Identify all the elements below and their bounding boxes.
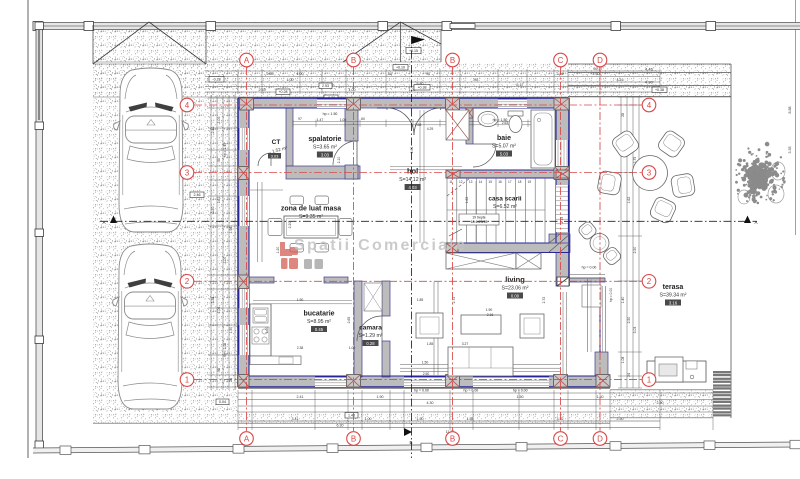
svg-text:S=3.65 m²: S=3.65 m² <box>313 145 337 151</box>
svg-text:0.45: 0.45 <box>315 327 324 332</box>
svg-text:13: 13 <box>469 180 473 184</box>
svg-text:B: B <box>409 440 412 445</box>
svg-text:1.85: 1.85 <box>417 298 424 302</box>
svg-text:12: 12 <box>459 180 463 184</box>
svg-text:1.00: 1.00 <box>365 417 372 421</box>
svg-text:19 trepte: 19 trepte <box>472 216 485 220</box>
svg-text:hp = 0.00: hp = 0.00 <box>414 389 429 393</box>
svg-text:4.16: 4.16 <box>617 78 624 82</box>
svg-text:1: 1 <box>647 376 652 385</box>
svg-text:14: 14 <box>479 180 483 184</box>
svg-text:4: 4 <box>185 101 190 110</box>
svg-text:3.41: 3.41 <box>292 417 299 421</box>
svg-text:1.62: 1.62 <box>465 197 469 204</box>
svg-text:B: B <box>450 434 455 443</box>
svg-text:1.61: 1.61 <box>217 197 221 204</box>
svg-text:1.00: 1.00 <box>217 117 221 124</box>
svg-text:0.28: 0.28 <box>366 341 375 346</box>
svg-text:60: 60 <box>388 72 392 76</box>
svg-text:+0.28: +0.28 <box>278 90 287 94</box>
svg-text:5.17: 5.17 <box>517 83 524 87</box>
svg-text:2.50: 2.50 <box>633 247 637 254</box>
svg-text:2.30: 2.30 <box>211 127 215 134</box>
svg-text:2.72: 2.72 <box>542 297 546 304</box>
svg-text:18: 18 <box>518 180 522 184</box>
svg-text:2.16: 2.16 <box>487 313 494 317</box>
svg-text:3.03: 3.03 <box>271 154 280 159</box>
svg-text:4.03: 4.03 <box>409 185 418 190</box>
svg-text:S=6.52 m²: S=6.52 m² <box>493 204 517 210</box>
svg-text:3.27: 3.27 <box>462 342 469 346</box>
svg-text:hp = 0.00: hp = 0.00 <box>582 266 597 270</box>
svg-text:S=8.95 m²: S=8.95 m² <box>307 319 331 325</box>
svg-text:hp = 1.50: hp = 1.50 <box>323 112 338 116</box>
svg-text:2.50: 2.50 <box>617 417 624 421</box>
svg-text:1.43: 1.43 <box>348 414 355 418</box>
svg-text:S=23.06 m²: S=23.06 m² <box>502 286 529 292</box>
svg-text:4.29: 4.29 <box>427 127 434 131</box>
svg-text:1.90: 1.90 <box>486 308 493 312</box>
svg-text:zona de luat masa: zona de luat masa <box>281 206 341 213</box>
svg-text:2.50: 2.50 <box>627 317 631 324</box>
svg-text:Spatii Comerciale: Spatii Comerciale <box>294 237 467 254</box>
svg-text:2.56: 2.56 <box>557 72 564 76</box>
svg-text:S=9.35 m²: S=9.35 m² <box>299 214 323 220</box>
svg-text:1.50: 1.50 <box>422 360 429 364</box>
svg-text:1: 1 <box>185 376 190 385</box>
svg-text:24: 24 <box>627 373 631 377</box>
svg-text:1.00: 1.00 <box>223 257 227 264</box>
svg-text:3.38: 3.38 <box>211 297 215 304</box>
svg-text:casa scarii: casa scarii <box>488 196 521 203</box>
svg-text:1.00: 1.00 <box>287 78 294 82</box>
svg-text:1.85: 1.85 <box>427 342 434 346</box>
svg-text:1.50: 1.50 <box>229 327 233 334</box>
svg-text:0.00: 0.00 <box>511 293 520 298</box>
svg-text:A: A <box>244 56 250 65</box>
svg-text:2.46: 2.46 <box>194 193 201 197</box>
svg-text:1.90: 1.90 <box>377 395 384 399</box>
svg-text:50: 50 <box>217 158 221 162</box>
svg-text:1.40: 1.40 <box>621 297 625 304</box>
svg-text:camara: camara <box>359 325 382 332</box>
svg-text:18.4x25/28: 18.4x25/28 <box>471 220 488 224</box>
svg-text:2: 2 <box>647 277 652 286</box>
svg-text:+0.10: +0.10 <box>396 66 405 70</box>
svg-text:97: 97 <box>298 117 302 121</box>
svg-text:1.06: 1.06 <box>217 307 221 314</box>
svg-text:2.38: 2.38 <box>297 346 304 350</box>
svg-text:+0.38: +0.38 <box>655 88 664 92</box>
svg-text:C: C <box>558 434 564 443</box>
svg-text:C: C <box>558 56 564 65</box>
svg-text:59.17: 59.17 <box>594 67 603 71</box>
svg-text:+0.15: +0.15 <box>409 49 418 53</box>
svg-text:28: 28 <box>621 113 625 117</box>
svg-text:CT: CT <box>272 139 281 146</box>
svg-text:A: A <box>102 220 105 225</box>
svg-text:A: A <box>754 220 757 225</box>
svg-text:3.16: 3.16 <box>669 300 678 305</box>
svg-text:hp = 0.00: hp = 0.00 <box>464 389 479 393</box>
svg-text:3.03: 3.03 <box>633 327 637 334</box>
svg-text:90: 90 <box>474 78 478 82</box>
svg-text:1.50: 1.50 <box>417 417 424 421</box>
svg-text:terasa: terasa <box>663 284 684 291</box>
svg-text:+0.38: +0.38 <box>417 86 426 90</box>
svg-text:2.50: 2.50 <box>423 372 430 376</box>
svg-text:3.52: 3.52 <box>557 417 564 421</box>
svg-text:B: B <box>351 434 356 443</box>
svg-text:1.08: 1.08 <box>621 357 625 364</box>
svg-text:98: 98 <box>217 368 221 372</box>
svg-text:2.50: 2.50 <box>593 72 600 76</box>
svg-text:2.63: 2.63 <box>502 121 509 125</box>
svg-text:60: 60 <box>361 117 365 121</box>
svg-text:0.04: 0.04 <box>219 400 226 404</box>
svg-text:15: 15 <box>488 180 492 184</box>
svg-text:3: 3 <box>647 168 652 177</box>
svg-text:4.30: 4.30 <box>427 401 434 405</box>
svg-text:2.65: 2.65 <box>347 317 351 324</box>
svg-text:2.63: 2.63 <box>267 72 274 76</box>
svg-text:2.53: 2.53 <box>322 84 329 88</box>
svg-text:spalatorie: spalatorie <box>308 136 341 143</box>
svg-text:living: living <box>505 275 525 284</box>
svg-text:1.00: 1.00 <box>340 118 347 122</box>
svg-text:bucatarie: bucatarie <box>303 311 334 318</box>
svg-text:3.03: 3.03 <box>321 152 330 157</box>
svg-text:2: 2 <box>185 277 190 286</box>
svg-text:baie: baie <box>497 135 511 142</box>
svg-text:1.90: 1.90 <box>297 298 304 302</box>
svg-text:1.00: 1.00 <box>349 88 356 92</box>
svg-text:hp = 0.00: hp = 0.00 <box>513 389 528 393</box>
svg-text:A: A <box>244 434 250 443</box>
svg-text:1.98: 1.98 <box>229 227 233 234</box>
svg-text:19: 19 <box>528 180 532 184</box>
svg-text:B: B <box>450 56 455 65</box>
svg-text:1.62: 1.62 <box>627 197 631 204</box>
svg-text:8.88: 8.88 <box>788 107 792 114</box>
svg-text:2.30: 2.30 <box>211 207 215 214</box>
svg-text:S=5.07 m²: S=5.07 m² <box>492 144 516 150</box>
svg-text:1.20: 1.20 <box>276 247 280 254</box>
svg-text:17: 17 <box>508 180 512 184</box>
svg-text:6.30: 6.30 <box>337 424 344 428</box>
svg-text:1.50: 1.50 <box>517 395 524 399</box>
svg-text:2.02: 2.02 <box>410 147 414 154</box>
svg-text:1.47: 1.47 <box>317 118 324 122</box>
svg-text:2.41: 2.41 <box>297 395 304 399</box>
svg-text:5.03: 5.03 <box>500 151 509 156</box>
svg-text:-0.28: -0.28 <box>212 78 220 82</box>
svg-text:D: D <box>597 434 603 443</box>
svg-text:3: 3 <box>185 168 190 177</box>
svg-text:1.58: 1.58 <box>467 417 474 421</box>
svg-text:16: 16 <box>498 180 502 184</box>
svg-text:hol: hol <box>407 167 418 176</box>
svg-text:2.10: 2.10 <box>337 157 341 164</box>
svg-text:2.20: 2.20 <box>288 222 292 229</box>
svg-text:S=1.29 m²: S=1.29 m² <box>358 333 382 339</box>
svg-text:S=14,12 m²: S=14,12 m² <box>399 177 426 183</box>
svg-text:90: 90 <box>426 72 430 76</box>
svg-text:S=39.34 m²: S=39.34 m² <box>660 293 687 299</box>
svg-text:1.00: 1.00 <box>265 327 269 334</box>
svg-text:B: B <box>351 56 356 65</box>
svg-text:4.46: 4.46 <box>645 67 654 72</box>
svg-text:4: 4 <box>647 101 652 110</box>
svg-text:1.00: 1.00 <box>349 346 356 350</box>
svg-text:hp = 0.00: hp = 0.00 <box>609 288 613 302</box>
svg-text:D: D <box>597 56 603 65</box>
svg-text:3.35: 3.35 <box>788 147 792 154</box>
svg-text:2.88: 2.88 <box>415 123 422 127</box>
